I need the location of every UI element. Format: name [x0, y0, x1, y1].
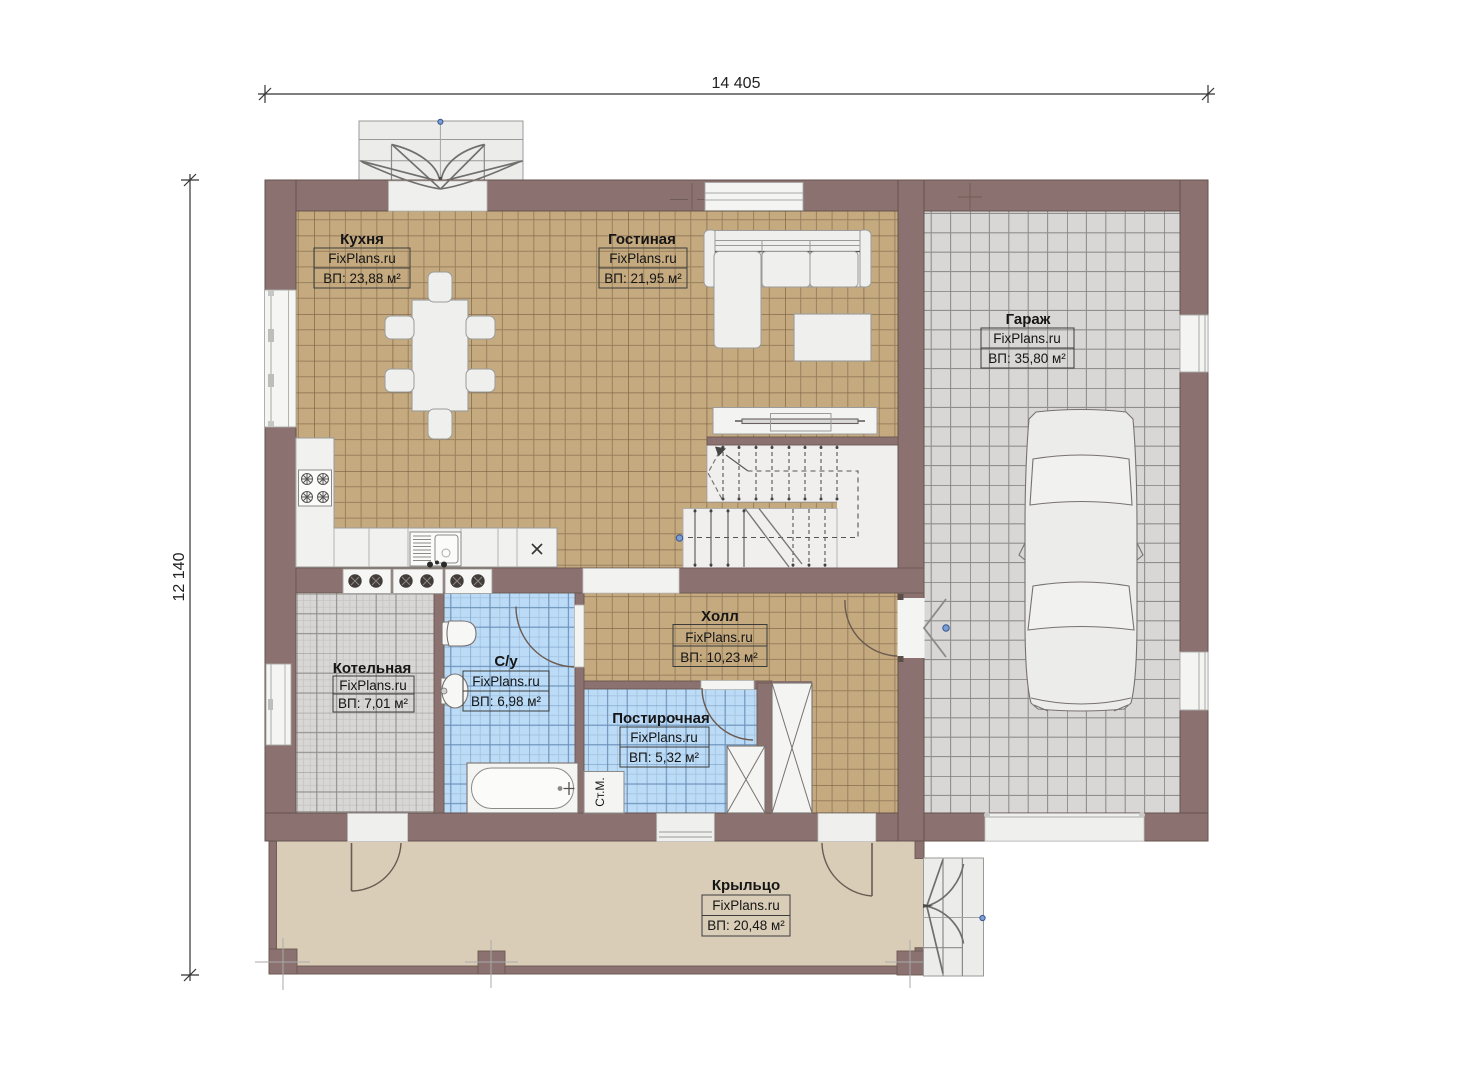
svg-text:12 140: 12 140 — [171, 552, 188, 601]
svg-text:ВП: 5,32 м²: ВП: 5,32 м² — [629, 750, 700, 765]
svg-text:ВП: 35,80 м²: ВП: 35,80 м² — [988, 351, 1066, 366]
svg-text:FixPlans.ru: FixPlans.ru — [328, 251, 396, 266]
svg-text:FixPlans.ru: FixPlans.ru — [993, 331, 1061, 346]
svg-text:Котельная: Котельная — [333, 660, 412, 677]
svg-text:FixPlans.ru: FixPlans.ru — [472, 674, 540, 689]
svg-text:FixPlans.ru: FixPlans.ru — [339, 678, 407, 693]
svg-text:14 405: 14 405 — [712, 75, 761, 92]
svg-text:FixPlans.ru: FixPlans.ru — [630, 730, 698, 745]
svg-text:Холл: Холл — [701, 608, 739, 625]
svg-text:ВП: 20,48 м²: ВП: 20,48 м² — [707, 918, 785, 933]
svg-text:Крыльцо: Крыльцо — [712, 877, 780, 894]
svg-text:FixPlans.ru: FixPlans.ru — [712, 898, 780, 913]
svg-text:ВП: 7,01 м²: ВП: 7,01 м² — [338, 696, 409, 711]
svg-text:Гараж: Гараж — [1006, 311, 1051, 328]
svg-text:Постирочная: Постирочная — [612, 710, 709, 727]
svg-text:Кухня: Кухня — [340, 231, 384, 248]
svg-text:FixPlans.ru: FixPlans.ru — [685, 630, 753, 645]
svg-text:С/у: С/у — [494, 653, 518, 670]
svg-text:Ст.М.: Ст.М. — [593, 777, 607, 807]
svg-text:ВП: 23,88 м²: ВП: 23,88 м² — [323, 271, 401, 286]
svg-text:FixPlans.ru: FixPlans.ru — [609, 251, 677, 266]
svg-text:ВП: 10,23 м²: ВП: 10,23 м² — [680, 650, 758, 665]
svg-text:ВП: 21,95 м²: ВП: 21,95 м² — [604, 271, 682, 286]
svg-text:ВП: 6,98 м²: ВП: 6,98 м² — [471, 694, 542, 709]
svg-text:Гостиная: Гостиная — [608, 231, 676, 248]
